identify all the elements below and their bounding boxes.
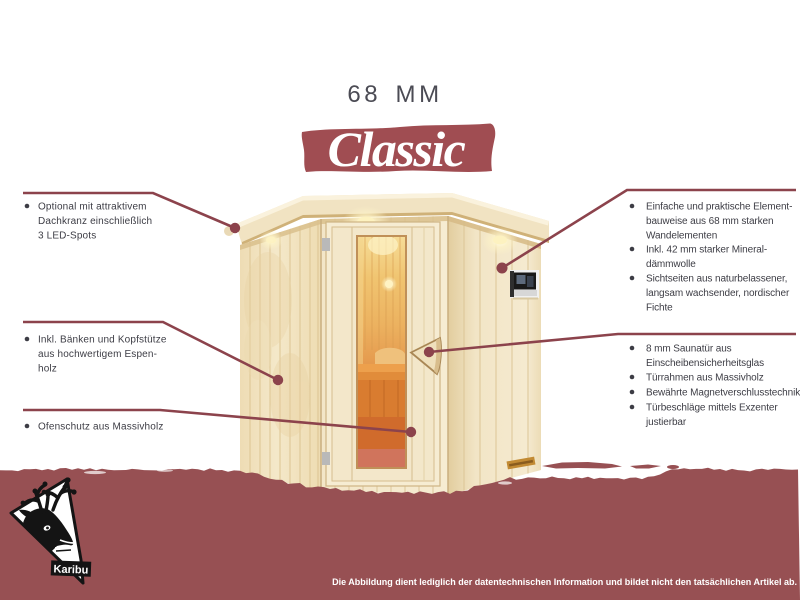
svg-text:aus hochwertigem Espen-: aus hochwertigem Espen- [38,349,157,360]
svg-text:Dachkranz einschließlich: Dachkranz einschließlich [38,216,152,227]
svg-text:Die Abbildung dient lediglich: Die Abbildung dient lediglich der datent… [332,577,797,587]
svg-text:Optional mit attraktivem: Optional mit attraktivem [38,202,147,213]
svg-text:Türbeschläge mittels Exzenter: Türbeschläge mittels Exzenter [646,403,778,414]
svg-text:holz: holz [38,363,57,374]
svg-text:Ofenschutz aus Massivholz: Ofenschutz aus Massivholz [38,422,163,433]
svg-text:Karibu: Karibu [53,563,88,576]
svg-text:Sichtseiten aus naturbelassene: Sichtseiten aus naturbelassener, [646,274,787,285]
svg-text:Classic: Classic [328,121,466,177]
svg-text:8 mm Saunatür aus: 8 mm Saunatür aus [646,344,732,355]
svg-text:bauweise aus 68 mm starken: bauweise aus 68 mm starken [646,216,773,227]
svg-text:3 LED-Spots: 3 LED-Spots [38,230,96,241]
svg-text:Bewährte Magnetverschlusstechn: Bewährte Magnetverschlusstechnik [646,388,800,399]
svg-text:Fichte: Fichte [646,302,673,313]
svg-text:langsam wachsender, nordischer: langsam wachsender, nordischer [646,288,790,299]
svg-text:justierbar: justierbar [645,417,687,428]
svg-text:Inkl. 42 mm starker Mineral-: Inkl. 42 mm starker Mineral- [646,245,767,256]
svg-text:Einfache und praktische Elemen: Einfache und praktische Element- [646,202,792,213]
svg-text:68 MM: 68 MM [347,81,442,108]
svg-text:Inkl. Bänken und Kopfstütze: Inkl. Bänken und Kopfstütze [38,335,167,346]
svg-text:Einscheibensicherheitsglas: Einscheibensicherheitsglas [646,358,764,369]
svg-text:dämmwolle: dämmwolle [646,259,696,270]
svg-text:Wandelementen: Wandelementen [646,230,717,241]
svg-text:Türrahmen aus Massivholz: Türrahmen aus Massivholz [646,373,764,384]
